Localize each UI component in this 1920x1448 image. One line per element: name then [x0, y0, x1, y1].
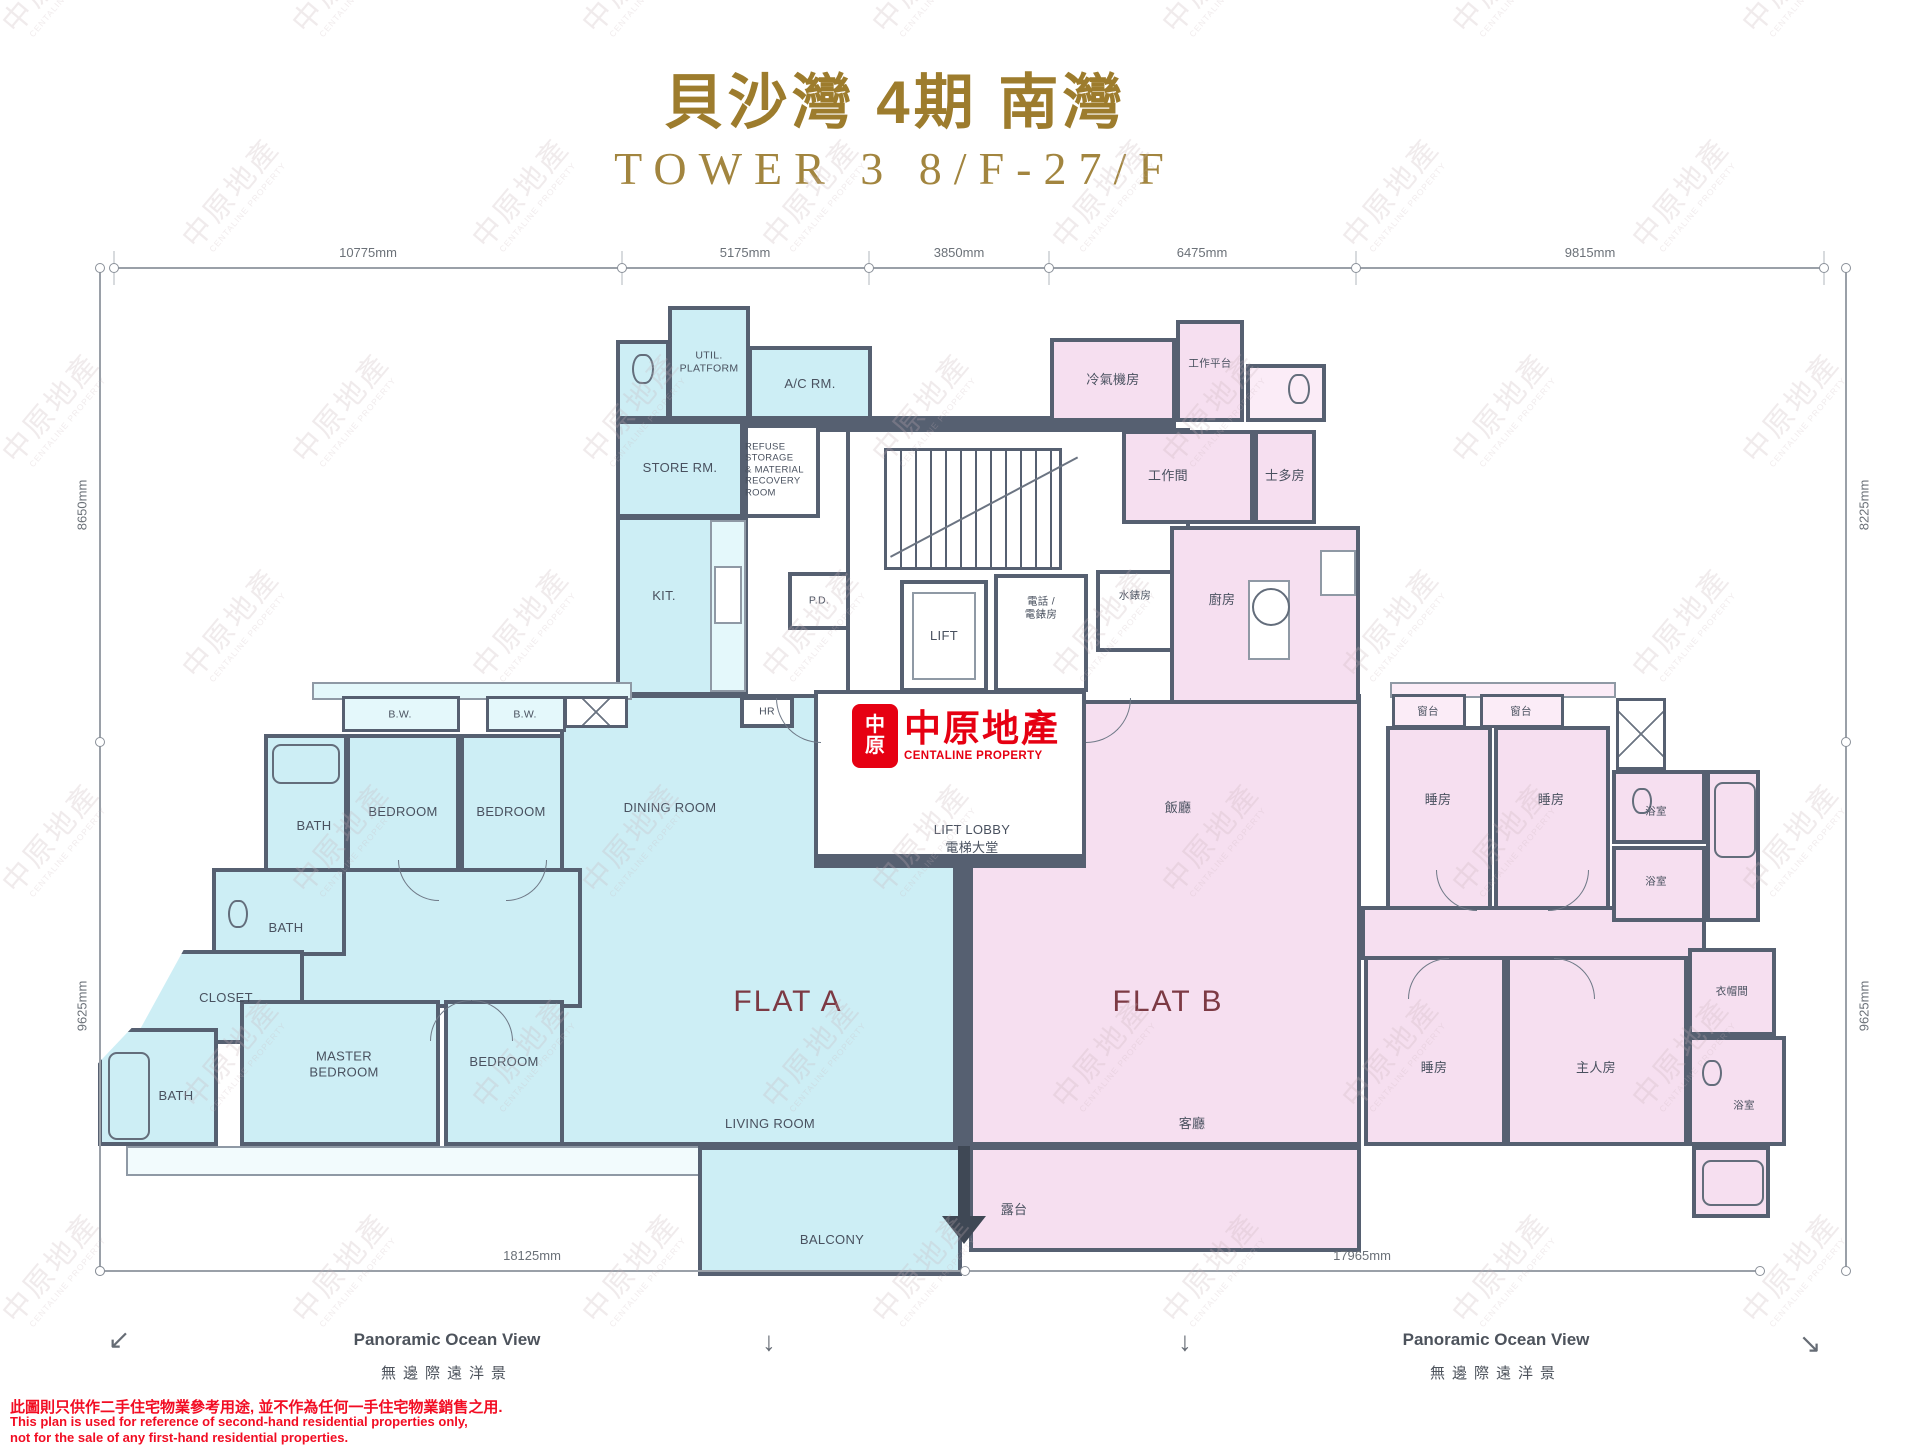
label-bath-3: BATH	[159, 1088, 194, 1104]
label-living-room: LIVING ROOM	[725, 1116, 815, 1132]
label-bath-2: BATH	[269, 920, 304, 936]
label-bedroom-r1: 睡房	[1425, 792, 1452, 808]
toilet-icon	[1702, 1060, 1722, 1086]
label-master-bedroom: MASTER BEDROOM	[309, 1048, 378, 1079]
dim-node	[617, 263, 627, 273]
watermark-tile: 中原地產CENTALINE PROPERTY	[1711, 0, 1879, 76]
watermark-tile: 中原地產CENTALINE PROPERTY	[1891, 532, 1920, 721]
label-storeroom-b: 士多房	[1265, 468, 1305, 484]
label-bay-2: 窗台	[1510, 706, 1532, 719]
staircase	[884, 448, 1062, 570]
dim-top-4: 6475mm	[1177, 245, 1228, 260]
label-hr: HR	[759, 706, 775, 719]
view-arrow-sw-icon: ↙	[108, 1325, 131, 1356]
label-kitchen-b: 廚房	[1209, 592, 1236, 608]
label-bathroom-r1: 浴室	[1645, 806, 1667, 819]
watermark-tile: 中原地產CENTALINE PROPERTY	[1891, 962, 1920, 1151]
shaft-xbox	[1616, 698, 1666, 770]
label-flat-a: FLAT A	[733, 984, 842, 1020]
label-dining-zh: 飯廳	[1165, 800, 1192, 816]
label-lift-lobby-zh: 電梯大堂	[945, 840, 998, 856]
label-store-rm: STORE RM.	[643, 460, 718, 476]
label-bedroom-r2: 睡房	[1538, 792, 1565, 808]
dim-line-top	[114, 267, 1824, 269]
dim-bottom-1: 18125mm	[503, 1248, 561, 1263]
room-balcony-b	[969, 1146, 1361, 1252]
label-living-zh: 客廳	[1179, 1116, 1206, 1132]
label-bedroom-2: BEDROOM	[476, 804, 545, 820]
label-water-meter: 水錶房	[1119, 590, 1151, 603]
emblem-char-bottom: 原	[865, 736, 885, 757]
disclaimer-en-2: not for the sale of any first-hand resid…	[10, 1430, 348, 1445]
dim-top-1: 10775mm	[339, 245, 397, 260]
label-kit: KIT.	[652, 588, 676, 604]
watermark-tile: 中原地產CENTALINE PROPERTY	[1891, 102, 1920, 291]
ocean-view-left-zh: 無邊際遠洋景	[381, 1362, 513, 1383]
dim-line-bottom	[100, 1270, 1760, 1272]
label-lift-lobby-en: LIFT LOBBY	[934, 822, 1010, 838]
label-balcony-zh: 露台	[1001, 1202, 1028, 1218]
terrace-strip	[126, 1146, 700, 1176]
bathtub-icon	[108, 1052, 150, 1140]
dim-line-left	[99, 268, 101, 1271]
label-flat-b: FLAT B	[1113, 984, 1224, 1020]
room-work-platform	[1176, 320, 1244, 422]
watermark-tile: 中原地產CENTALINE PROPERTY	[0, 0, 139, 76]
toilet-icon	[1288, 374, 1310, 404]
watermark-tile: 中原地產CENTALINE PROPERTY	[151, 532, 319, 721]
centaline-name-zh: 中原地產	[904, 710, 1060, 747]
dim-node	[95, 1266, 105, 1276]
room-toilet-tr	[1246, 364, 1326, 422]
watermark-tile: 中原地產CENTALINE PROPERTY	[1711, 317, 1879, 506]
dim-line-right	[1845, 268, 1847, 1271]
page-subtitle: TOWER 3 8/F-27/F	[240, 142, 1550, 195]
bay-xbox	[564, 696, 628, 728]
view-arrow-down-icon: ↓	[1178, 1327, 1192, 1358]
dim-top-3: 3850mm	[934, 245, 985, 260]
label-bath-1: BATH	[297, 818, 332, 834]
toilet-icon	[632, 354, 654, 384]
label-dining-room: DINING ROOM	[624, 800, 717, 816]
label-bw-2: B.W.	[513, 709, 536, 722]
label-master-b: 主人房	[1576, 1060, 1616, 1076]
entrance-arrow-stem	[958, 1146, 970, 1218]
centaline-logo-text: 中原地產 CENTALINE PROPERTY	[904, 710, 1060, 762]
dim-node	[1841, 1266, 1851, 1276]
watermark-tile: 中原地產CENTALINE PROPERTY	[0, 747, 139, 936]
dim-bottom-2: 17965mm	[1333, 1248, 1391, 1263]
label-closet: CLOSET	[199, 990, 253, 1006]
dim-node	[95, 737, 105, 747]
label-bedroom-r3: 睡房	[1421, 1060, 1448, 1076]
dim-left-1: 8650mm	[75, 480, 90, 531]
ocean-view-right-zh: 無邊際遠洋景	[1430, 1362, 1562, 1383]
emblem-char-top: 中	[865, 715, 885, 736]
dim-right-2: 9625mm	[1857, 981, 1872, 1032]
dim-node	[1841, 737, 1851, 747]
label-tel-meter: 電話 / 電錶房	[1025, 595, 1057, 620]
stove-icon	[714, 566, 742, 624]
dim-node	[1841, 263, 1851, 273]
dim-node	[1351, 263, 1361, 273]
wall-lobby-bottom	[814, 854, 1086, 868]
label-bw-1: B.W.	[388, 709, 411, 722]
label-bathroom-r2: 浴室	[1645, 876, 1667, 889]
watermark-tile: 中原地產CENTALINE PROPERTY	[0, 317, 139, 506]
dim-node	[1044, 263, 1054, 273]
label-bedroom-3: BEDROOM	[469, 1054, 538, 1070]
label-refuse: REFUSE STORAGE & MATERIAL RECOVERY ROOM	[745, 442, 819, 499]
label-bedroom-1: BEDROOM	[368, 804, 437, 820]
kitchen-sink-unit	[1320, 550, 1356, 596]
label-balcony: BALCONY	[800, 1232, 864, 1248]
dim-right-1: 8225mm	[1857, 480, 1872, 531]
watermark-tile: 中原地產CENTALINE PROPERTY	[261, 317, 429, 506]
centaline-logo: 中 原 中原地產 CENTALINE PROPERTY	[852, 704, 1060, 768]
view-arrow-down-icon: ↓	[762, 1327, 776, 1358]
room-water-meter	[1096, 570, 1174, 652]
room-bathroom-r3	[1688, 1036, 1786, 1146]
room-balcony-a	[698, 1146, 962, 1276]
dim-left-2: 9625mm	[75, 981, 90, 1032]
bathtub-icon	[1702, 1160, 1764, 1206]
sink-icon	[1252, 588, 1290, 626]
view-arrow-se-icon: ↘	[1799, 1329, 1822, 1360]
dim-node	[109, 263, 119, 273]
entrance-arrow-head	[942, 1216, 986, 1244]
disclaimer-en-1: This plan is used for reference of secon…	[10, 1414, 468, 1429]
watermark-tile: 中原地產CENTALINE PROPERTY	[1601, 532, 1769, 721]
dim-node	[1755, 1266, 1765, 1276]
bathtub-icon	[272, 744, 340, 784]
dim-node	[95, 263, 105, 273]
label-ac-plant: 冷氣機房	[1086, 372, 1139, 388]
dim-top-2: 5175mm	[720, 245, 771, 260]
label-work-platform: 工作平台	[1188, 358, 1231, 371]
ocean-view-left-en: Panoramic Ocean View	[354, 1330, 541, 1350]
label-lift: LIFT	[930, 628, 958, 644]
floor-plan-page: 貝沙灣 4期 南灣 TOWER 3 8/F-27/F 10775mm 5175m…	[0, 0, 1920, 1448]
label-pd: P.D.	[809, 595, 829, 608]
room-workroom	[1122, 430, 1254, 524]
room-master-b	[1506, 956, 1688, 1146]
ocean-view-right-en: Panoramic Ocean View	[1403, 1330, 1590, 1350]
centaline-name-en: CENTALINE PROPERTY	[904, 750, 1060, 762]
label-cloak: 衣帽間	[1716, 986, 1748, 999]
dim-node	[864, 263, 874, 273]
label-workroom: 工作間	[1148, 468, 1188, 484]
dim-top-5: 9815mm	[1565, 245, 1616, 260]
watermark-tile: 中原地產CENTALINE PROPERTY	[1421, 317, 1589, 506]
centaline-emblem-icon: 中 原	[852, 704, 898, 768]
room-tel-meter	[994, 574, 1088, 692]
dim-node	[960, 1266, 970, 1276]
bathtub-icon	[1714, 782, 1756, 858]
dim-node	[1819, 263, 1829, 273]
toilet-icon	[228, 900, 248, 928]
watermark-tile: 中原地產CENTALINE PROPERTY	[1601, 102, 1769, 291]
label-bathroom-r3: 浴室	[1733, 1100, 1755, 1113]
label-bay-1: 窗台	[1417, 706, 1439, 719]
label-ac-rm: A/C RM.	[784, 376, 835, 392]
label-util-platform: UTIL. PLATFORM	[680, 349, 739, 374]
page-title: 貝沙灣 4期 南灣	[240, 54, 1550, 141]
